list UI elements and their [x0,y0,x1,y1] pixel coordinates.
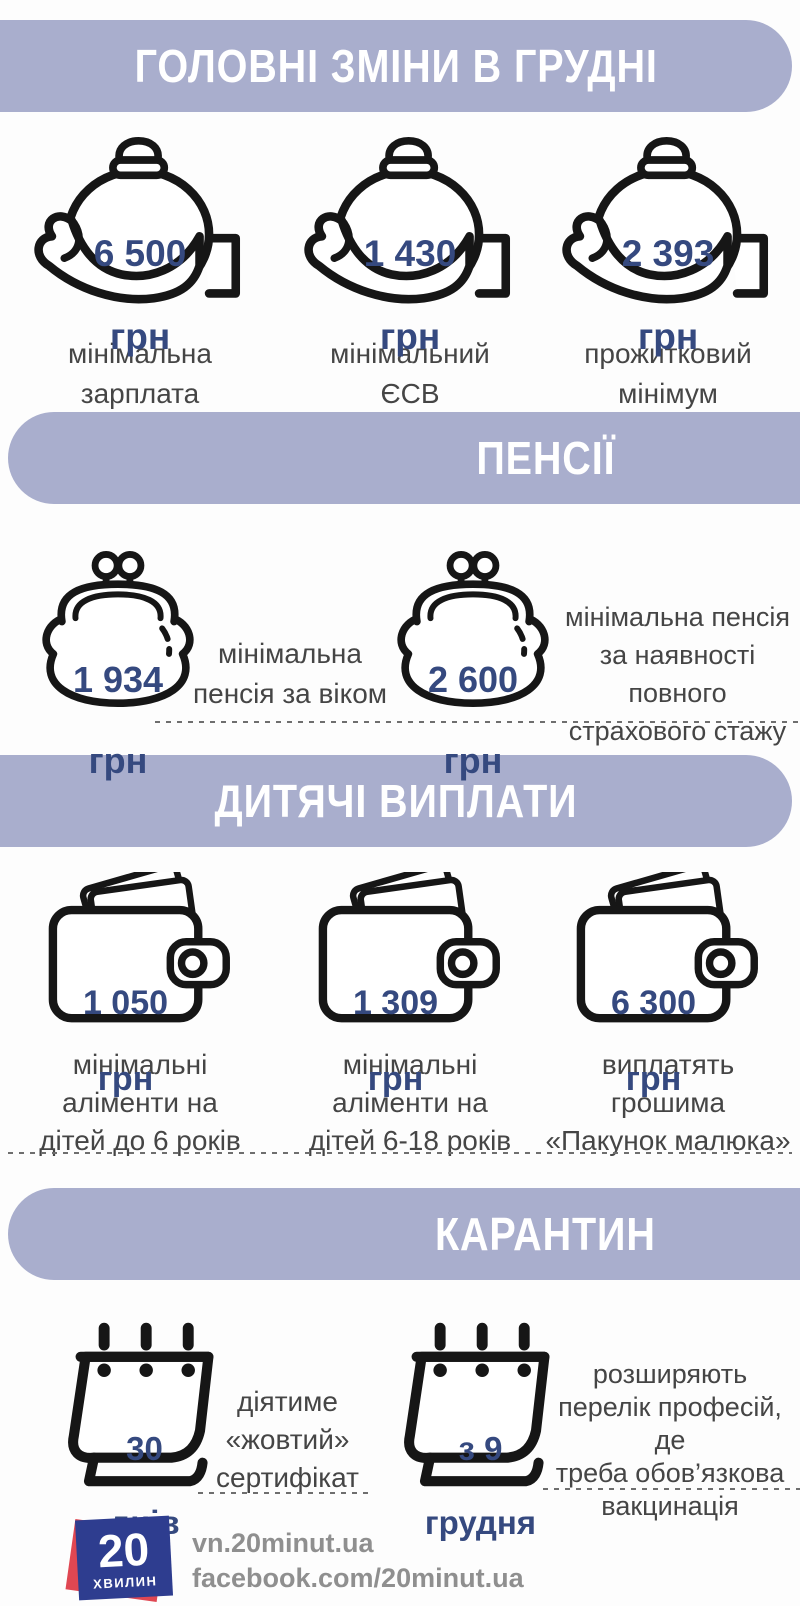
banner-child-title: ДИТЯЧІ ВИПЛАТИ [215,774,578,828]
20minut-logo: 20 ХВИЛИН [72,1516,174,1604]
amount-unit: грн [368,1060,423,1098]
amount-value: 6 500 грн [33,192,248,358]
dashed-divider [543,1488,800,1490]
amount-unit: грн [380,316,440,357]
quarantine-label: розширяють перелік професій, де треба об… [540,1358,800,1523]
banner-main-changes: ГОЛОВНІ ЗМІНИ В ГРУДНІ [0,20,792,112]
site-url: vn.20minut.ua [192,1528,374,1559]
child-payment-item: 1 309 грн мінімальні аліменти на дітей 6… [280,872,540,1160]
dashed-divider [8,1152,792,1154]
banner-pensions-title: ПЕНСІЇ [476,431,615,485]
infographic-page: ГОЛОВНІ ЗМІНИ В ГРУДНІ ПЕНСІЇ ДИТЯЧІ ВИП… [0,0,800,1606]
amount-unit: грн [444,740,503,781]
amount-number: 6 500 [94,233,187,274]
amount-unit: грн [89,740,148,781]
amount-unit: грудня [425,1504,536,1541]
amount-number: 6 300 [611,984,696,1022]
amount-number: 30 [126,1430,163,1467]
amount-value: 1 430 грн [303,192,518,358]
amount-unit: грн [638,316,698,357]
amount-value: 1 309 грн [308,946,484,1098]
banner-main-title: ГОЛОВНІ ЗМІНИ В ГРУДНІ [134,39,657,93]
amount-number: з 9 [459,1430,503,1467]
pension-label: мінімальна пенсія за наявності повного с… [550,598,800,750]
banner-pensions: ПЕНСІЇ [8,412,800,504]
amount-number: 2 600 [428,659,518,700]
pension-item: 1 934 грн [33,540,203,710]
amount-unit: грн [626,1060,681,1098]
money-item: 6 500 грн мінімальна зарплата [10,122,270,414]
logo-number: 20 [97,1525,151,1574]
pension-item: 2 600 грн [388,540,558,710]
banner-quarantine: КАРАНТИН [8,1188,800,1280]
child-payment-item: 1 050 грн мінімальні аліменти на дітей д… [10,872,270,1160]
amount-value: 2 393 грн [561,192,776,358]
money-item: 2 393 грн прожитковий мінімум [538,122,798,414]
pension-label: мінімальна пенсія за віком [185,634,395,714]
amount-unit: грн [110,316,170,357]
dashed-divider [155,721,800,723]
amount-number: 1 050 [83,984,168,1022]
amount-unit: грн [98,1060,153,1098]
logo-word: ХВИЛИН [93,1573,158,1591]
banner-quarantine-title: КАРАНТИН [435,1207,656,1261]
amount-value: 1 050 грн [38,946,214,1098]
dashed-divider [198,1492,368,1494]
child-payment-item: 6 300 грн виплатять грошима «Пакунок мал… [538,872,798,1160]
amount-number: 1 430 [364,233,457,274]
amount-value: 1 934 грн [33,620,203,781]
amount-number: 2 393 [622,233,715,274]
amount-number: 1 309 [353,984,438,1022]
facebook-url: facebook.com/20minut.ua [192,1563,524,1594]
money-item: 1 430 грн мінімальний ЄСВ [280,122,540,414]
amount-value: 6 300 грн [566,946,742,1098]
amount-value: 2 600 грн [388,620,558,781]
amount-number: 1 934 [73,659,163,700]
quarantine-label: діятиме «жовтий» сертифікат [195,1383,380,1497]
logo-blue-square: 20 ХВИЛИН [75,1516,173,1601]
